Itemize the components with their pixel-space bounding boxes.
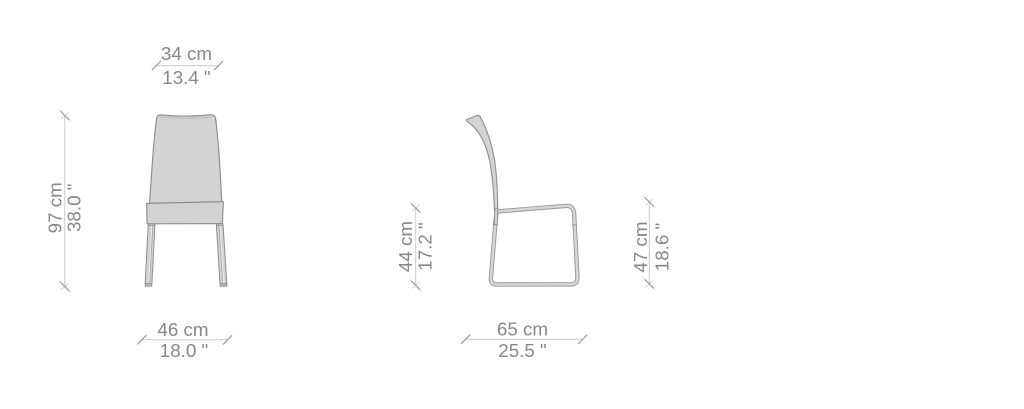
svg-text:65 cm: 65 cm — [497, 318, 548, 339]
svg-text:34 cm: 34 cm — [161, 43, 212, 64]
svg-text:46 cm: 46 cm — [157, 319, 208, 340]
svg-text:25.5 ": 25.5 " — [498, 340, 546, 361]
svg-text:13.4 ": 13.4 " — [162, 67, 210, 88]
svg-text:17.2 ": 17.2 " — [414, 222, 435, 270]
svg-text:97 cm: 97 cm — [44, 182, 65, 233]
svg-text:18.6 ": 18.6 " — [651, 223, 672, 271]
svg-text:38.0 ": 38.0 " — [64, 184, 85, 232]
svg-text:18.0 ": 18.0 " — [160, 340, 208, 361]
svg-text:47 cm: 47 cm — [630, 221, 651, 272]
svg-text:44 cm: 44 cm — [395, 221, 416, 272]
